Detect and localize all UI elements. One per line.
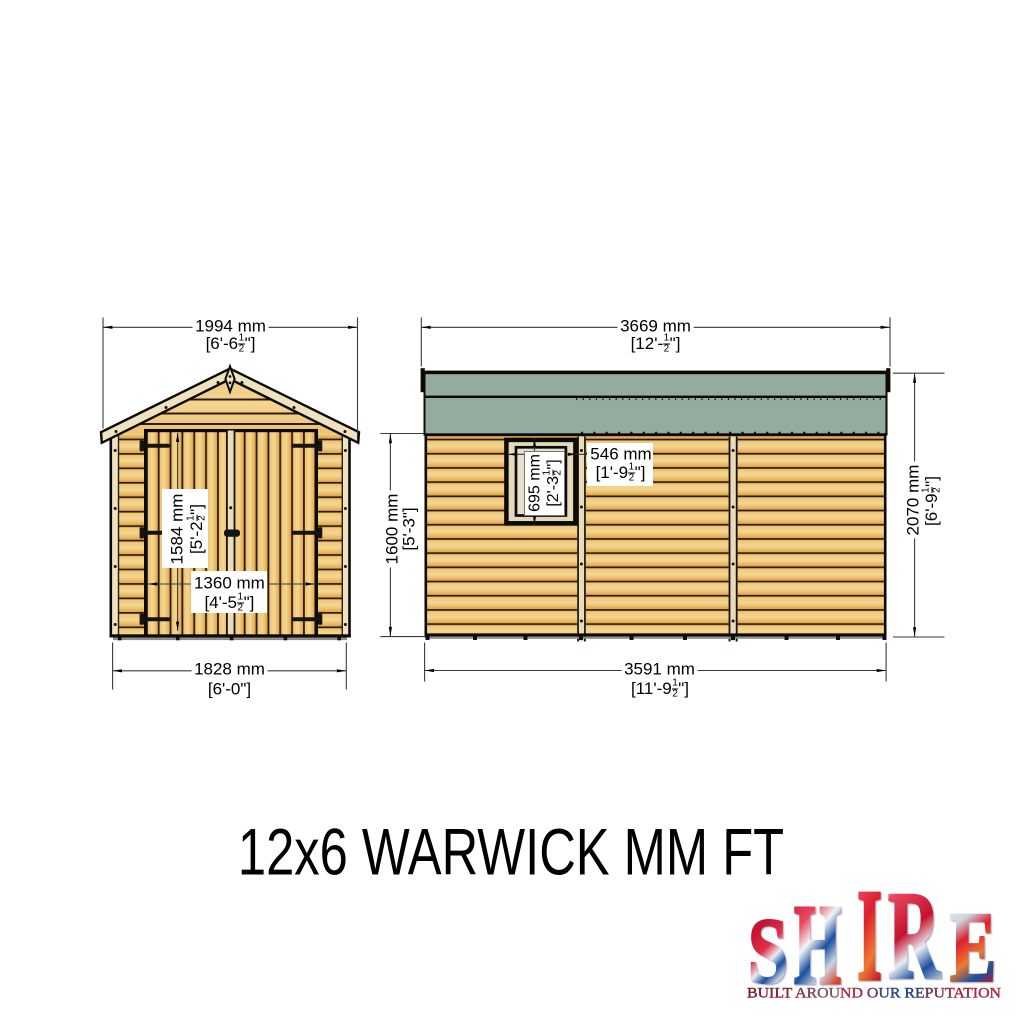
- svg-text:BUILT AROUND OUR REPUTATION: BUILT AROUND OUR REPUTATION: [747, 986, 1001, 1002]
